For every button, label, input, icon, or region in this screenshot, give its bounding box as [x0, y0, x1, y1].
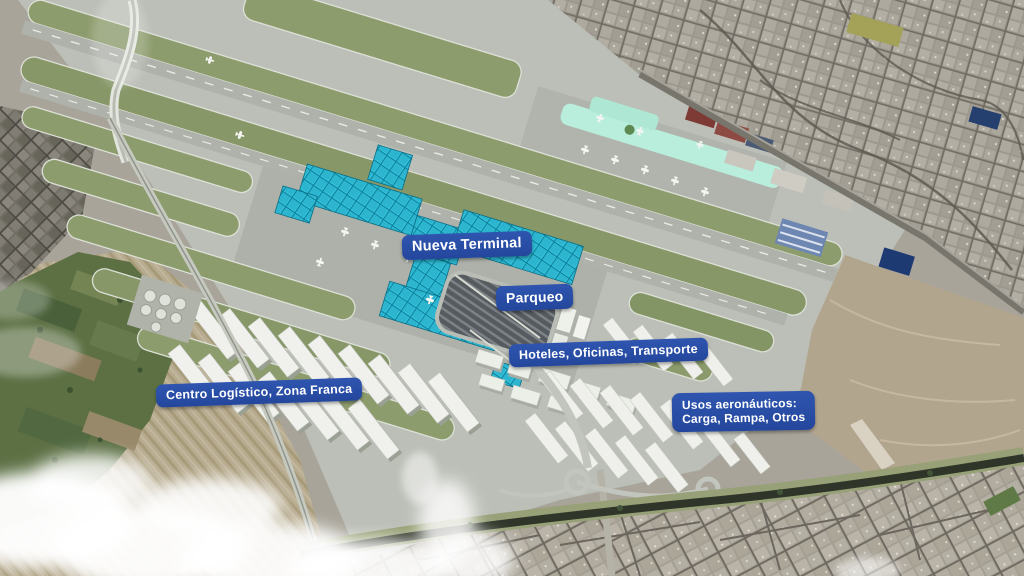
- label-parqueo: Parqueo: [496, 284, 574, 311]
- label-usos-line2: Carga, Rampa, Otros: [682, 410, 805, 427]
- airport-masterplan-view: Nueva Terminal Parqueo Hoteles, Oficinas…: [0, 0, 1024, 576]
- label-nueva-terminal: Nueva Terminal: [402, 231, 533, 261]
- label-usos-aeronauticos: Usos aeronáuticos: Carga, Rampa, Otros: [672, 391, 816, 432]
